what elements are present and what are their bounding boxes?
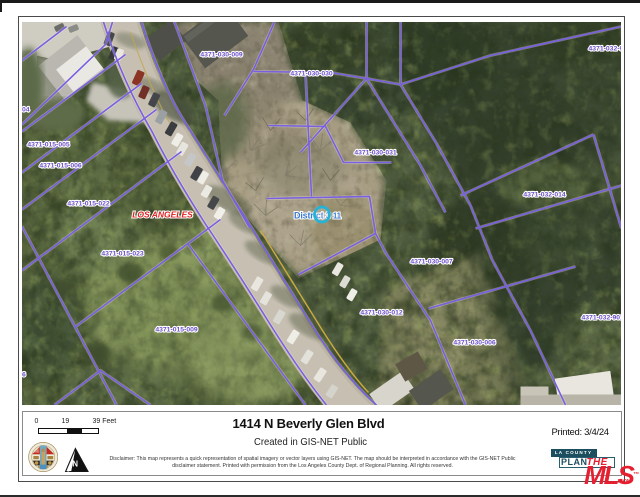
svg-text:4371-030-006: 4371-030-006	[453, 339, 496, 346]
svg-text:4371-030-012: 4371-030-012	[360, 309, 403, 316]
svg-text:4371-015-006: 4371-015-006	[39, 162, 82, 169]
svg-text:6: 6	[22, 371, 26, 378]
svg-text:4371-030-009: 4371-030-009	[200, 51, 243, 58]
svg-text:4371-030-030: 4371-030-030	[290, 70, 333, 77]
svg-text:4371-015-009: 4371-015-009	[155, 326, 198, 333]
svg-text:4371-032-901: 4371-032-901	[581, 314, 621, 321]
svg-text:4371-030-031: 4371-030-031	[354, 149, 397, 156]
svg-text:4371-032-9: 4371-032-9	[588, 45, 621, 52]
svg-text:4371-015-005: 4371-015-005	[27, 141, 70, 148]
svg-text:4371-015-023: 4371-015-023	[101, 250, 144, 257]
svg-text:04: 04	[22, 106, 30, 113]
svg-text:LOS ANGELES: LOS ANGELES	[132, 209, 193, 219]
svg-text:4371-032-014: 4371-032-014	[523, 191, 566, 198]
svg-text:N: N	[72, 459, 78, 468]
svg-text:4371-015-022: 4371-015-022	[67, 200, 110, 207]
svg-text:4371-030-007: 4371-030-007	[410, 258, 453, 265]
